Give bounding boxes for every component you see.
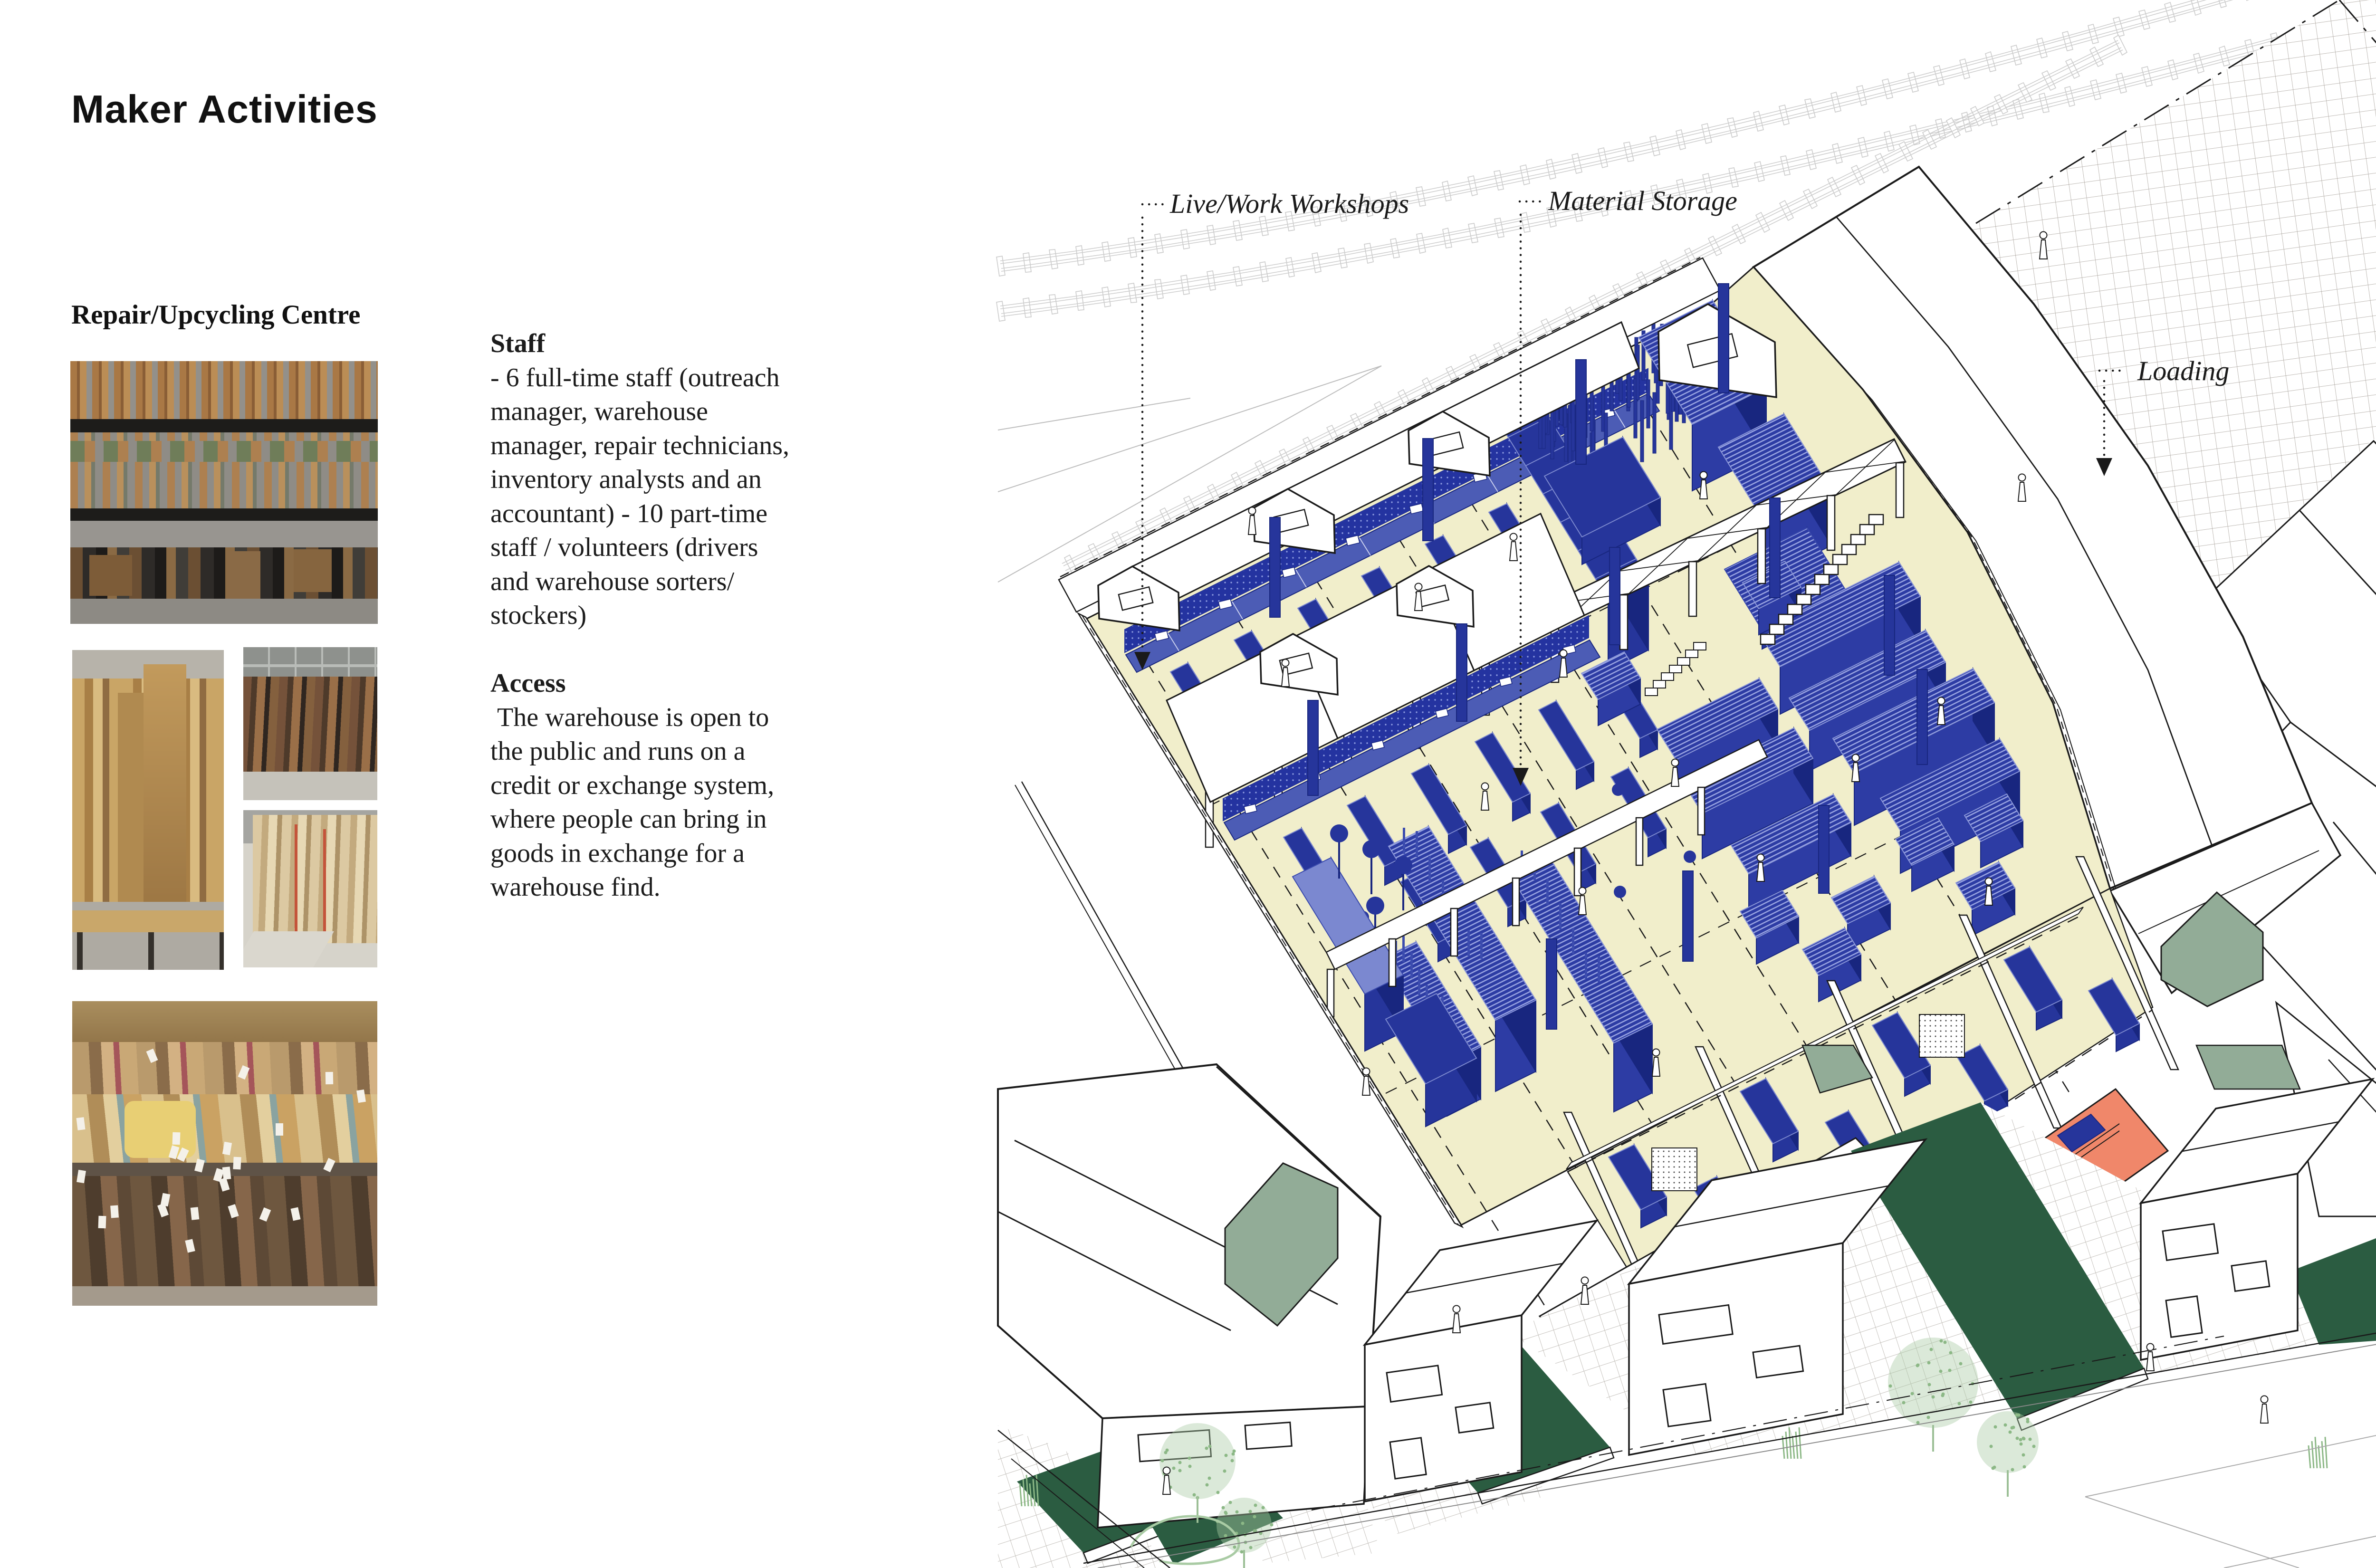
svg-text:Live/Work Workshops: Live/Work Workshops xyxy=(1169,188,1409,219)
svg-text:Material Storage: Material Storage xyxy=(1548,185,1737,216)
svg-text:Loading: Loading xyxy=(2137,355,2229,386)
